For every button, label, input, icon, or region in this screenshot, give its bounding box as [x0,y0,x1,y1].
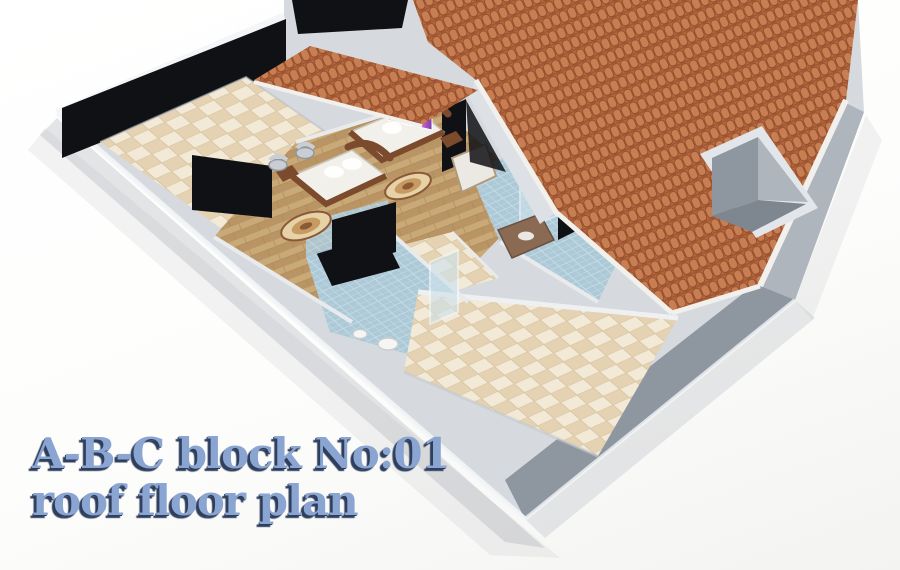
toilet [378,338,398,350]
shower-center-glass [430,250,458,324]
glass-panel-bedroom1 [192,155,272,218]
title-line-1: A-B-C block No:01 [32,430,450,477]
basin [353,330,367,339]
title-line-2: roof floor plan [32,477,450,524]
vanity-sink [518,232,534,241]
roof-floor-plan-render: A-B-C block No:01 roof floor plan [0,0,900,570]
title: A-B-C block No:01 roof floor plan [32,430,450,524]
